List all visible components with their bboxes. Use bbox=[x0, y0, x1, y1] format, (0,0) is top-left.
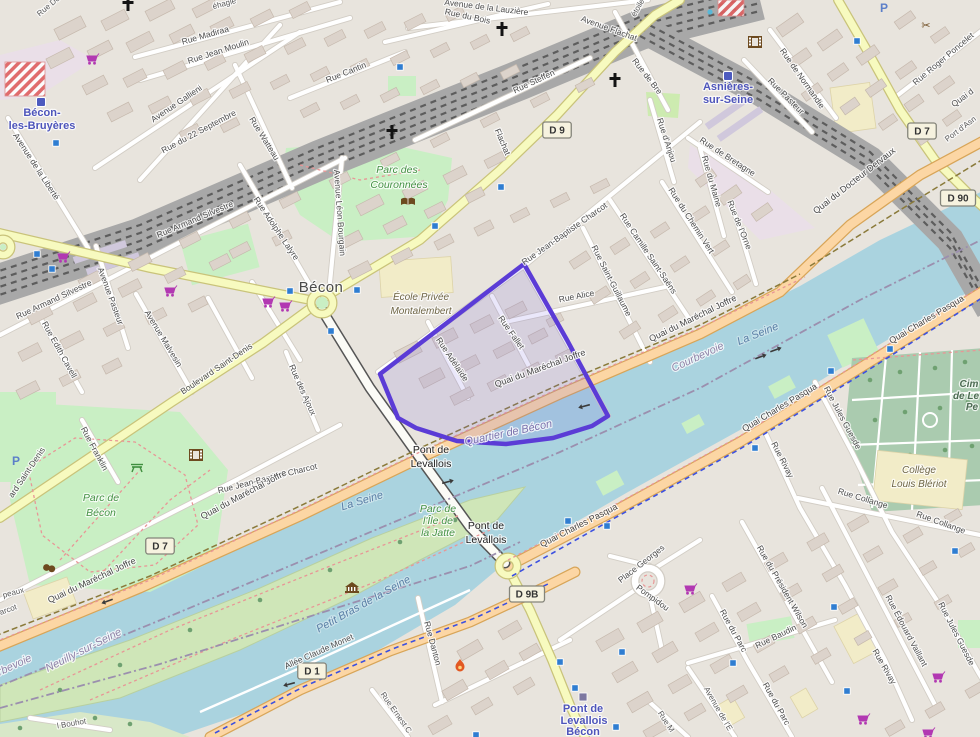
map-label: Pont de bbox=[413, 444, 449, 456]
signal-icon bbox=[557, 659, 563, 665]
openstreetmap-viewport[interactable]: ✂PPD 9D 7D 90D 7D 9BD 1Rue MadiraaRue Je… bbox=[0, 0, 980, 737]
film-icon bbox=[189, 449, 203, 461]
scissors-icon: ✂ bbox=[921, 20, 930, 32]
signal-icon bbox=[287, 288, 293, 294]
tree-icon bbox=[970, 444, 975, 449]
signal-icon bbox=[752, 445, 758, 451]
road-ref-badge: D 9 bbox=[543, 122, 572, 138]
svg-text:P: P bbox=[12, 454, 20, 468]
svg-text:D 9: D 9 bbox=[549, 126, 565, 137]
signal-icon bbox=[397, 64, 403, 70]
map-label: Montalembert bbox=[390, 306, 452, 317]
tree-icon bbox=[188, 628, 193, 633]
map-label: Pont de bbox=[563, 703, 603, 715]
map-label: École Privée bbox=[393, 290, 450, 303]
stationsq-icon bbox=[724, 72, 733, 81]
map-label: Cim bbox=[960, 379, 979, 390]
tree-icon bbox=[453, 518, 458, 523]
svg-text:D 7: D 7 bbox=[914, 127, 930, 138]
stationsq-icon bbox=[37, 98, 46, 107]
map-label: Bécon bbox=[566, 726, 600, 737]
signal-icon bbox=[844, 688, 850, 694]
roundabout-island bbox=[316, 297, 328, 309]
road-ref-badge: D 1 bbox=[298, 663, 327, 679]
map-label: la Jatte bbox=[421, 527, 455, 539]
tree-icon bbox=[963, 360, 968, 365]
map-label: Louis Blériot bbox=[891, 479, 947, 490]
signal-icon bbox=[473, 732, 479, 737]
map-label: Pe bbox=[966, 402, 979, 413]
signal-icon bbox=[831, 604, 837, 610]
map-label: les-Bruyères bbox=[9, 120, 76, 132]
map-label: Bécon bbox=[86, 507, 116, 519]
signal-icon bbox=[432, 223, 438, 229]
road-ref-badge: D 7 bbox=[908, 123, 937, 139]
tree-icon bbox=[933, 366, 938, 371]
map-label: Parc de bbox=[83, 492, 119, 504]
tree-icon bbox=[868, 378, 873, 383]
signal-icon bbox=[354, 287, 360, 293]
map-label: sur-Seine bbox=[703, 94, 753, 106]
parking-icon: P bbox=[12, 454, 20, 468]
tree-icon bbox=[938, 406, 943, 411]
svg-text:P: P bbox=[880, 1, 888, 15]
tree-icon bbox=[873, 418, 878, 423]
signal-icon bbox=[952, 548, 958, 554]
signal-icon bbox=[572, 685, 578, 691]
signal-icon bbox=[730, 660, 736, 666]
map-label: Collège bbox=[902, 465, 936, 476]
map-label: Levallois bbox=[466, 534, 507, 546]
signal-icon bbox=[49, 266, 55, 272]
tree-icon bbox=[128, 722, 133, 727]
signal-icon bbox=[498, 184, 504, 190]
svg-text:D 1: D 1 bbox=[304, 667, 320, 678]
signal-icon bbox=[887, 346, 893, 352]
signal-icon bbox=[619, 649, 625, 655]
metro-icon bbox=[579, 693, 587, 701]
signal-icon bbox=[34, 251, 40, 257]
signal-icon bbox=[604, 523, 610, 529]
tree-icon bbox=[328, 568, 333, 573]
construction-area bbox=[5, 62, 45, 96]
roundabout-island bbox=[0, 244, 6, 250]
svg-text:✂: ✂ bbox=[921, 20, 930, 32]
film-icon bbox=[748, 36, 762, 48]
map-label: Asnières- bbox=[703, 81, 753, 93]
signal-icon bbox=[53, 140, 59, 146]
svg-text:D 9B: D 9B bbox=[516, 590, 539, 601]
fountain-icon bbox=[707, 9, 712, 14]
signal-icon bbox=[613, 724, 619, 730]
tree-icon bbox=[903, 410, 908, 415]
tree-icon bbox=[118, 663, 123, 668]
parking-icon: P bbox=[880, 1, 888, 15]
signal-icon bbox=[328, 328, 334, 334]
road-ref-badge: D 90 bbox=[941, 190, 976, 206]
road-ref-badge: D 9B bbox=[510, 586, 545, 602]
signal-icon bbox=[828, 368, 834, 374]
map-label: Couronnées bbox=[370, 179, 428, 191]
tree-icon bbox=[943, 448, 948, 453]
map-label: de Le bbox=[953, 391, 980, 402]
tree-icon bbox=[898, 370, 903, 375]
map-label: Bécon bbox=[299, 279, 344, 296]
svg-text:D 90: D 90 bbox=[947, 194, 969, 205]
map-label: Parc de bbox=[420, 503, 456, 515]
road-ref-badge: D 7 bbox=[146, 538, 175, 554]
tree-icon bbox=[93, 716, 98, 721]
tree-icon bbox=[258, 598, 263, 603]
map-label: Pont de bbox=[468, 520, 504, 532]
map-canvas[interactable]: ✂PPD 9D 7D 90D 7D 9BD 1Rue MadiraaRue Je… bbox=[0, 0, 980, 737]
tree-icon bbox=[398, 540, 403, 545]
svg-text:D 7: D 7 bbox=[152, 542, 168, 553]
map-label: Parc des bbox=[376, 164, 418, 176]
tree-icon bbox=[18, 726, 23, 731]
construction-area bbox=[718, 0, 744, 16]
signal-icon bbox=[854, 38, 860, 44]
map-label: Levallois bbox=[411, 458, 452, 470]
map-label: l'Île de bbox=[423, 514, 453, 527]
map-label: Bécon- bbox=[23, 107, 61, 119]
